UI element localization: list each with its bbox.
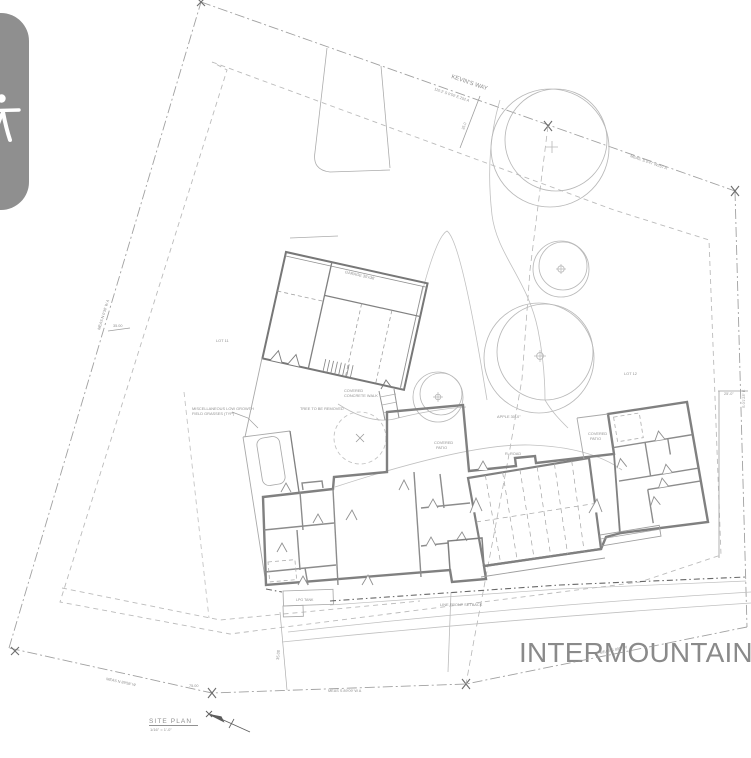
svg-text:PATIO: PATIO [590,436,601,441]
svg-text:SITE PLAN: SITE PLAN [149,718,192,725]
svg-text:S 0'1'23" E: S 0'1'23" E [742,389,746,408]
svg-text:FIELD GRASSES (TYP): FIELD GRASSES (TYP) [192,411,235,416]
svg-text:LPG TANK: LPG TANK [296,598,314,602]
svg-text:75.00: 75.00 [189,684,199,688]
svg-text:R. ROAD: R. ROAD [505,451,521,456]
svg-text:APPLE 30'-0": APPLE 30'-0" [497,414,521,419]
svg-text:INTERMOUNTAIN: INTERMOUNTAIN [519,637,751,668]
svg-text:TREE TO BE REMOVED: TREE TO BE REMOVED [300,406,344,411]
svg-text:25'-0": 25'-0" [724,392,734,396]
svg-text:35.00: 35.00 [275,649,281,660]
svg-text:LINE FRONT SETBACK: LINE FRONT SETBACK [440,602,483,607]
svg-text:35.00: 35.00 [113,324,123,328]
svg-text:LOT 12: LOT 12 [624,371,637,376]
svg-text:LOT 11: LOT 11 [216,338,229,343]
svg-text:PATIO: PATIO [436,445,447,450]
svg-text:MEAS S 89'09' W A: MEAS S 89'09' W A [328,689,362,693]
svg-text:CONCRETE WALK: CONCRETE WALK [344,393,378,398]
svg-text:1/16" = 1'-0": 1/16" = 1'-0" [150,727,172,732]
